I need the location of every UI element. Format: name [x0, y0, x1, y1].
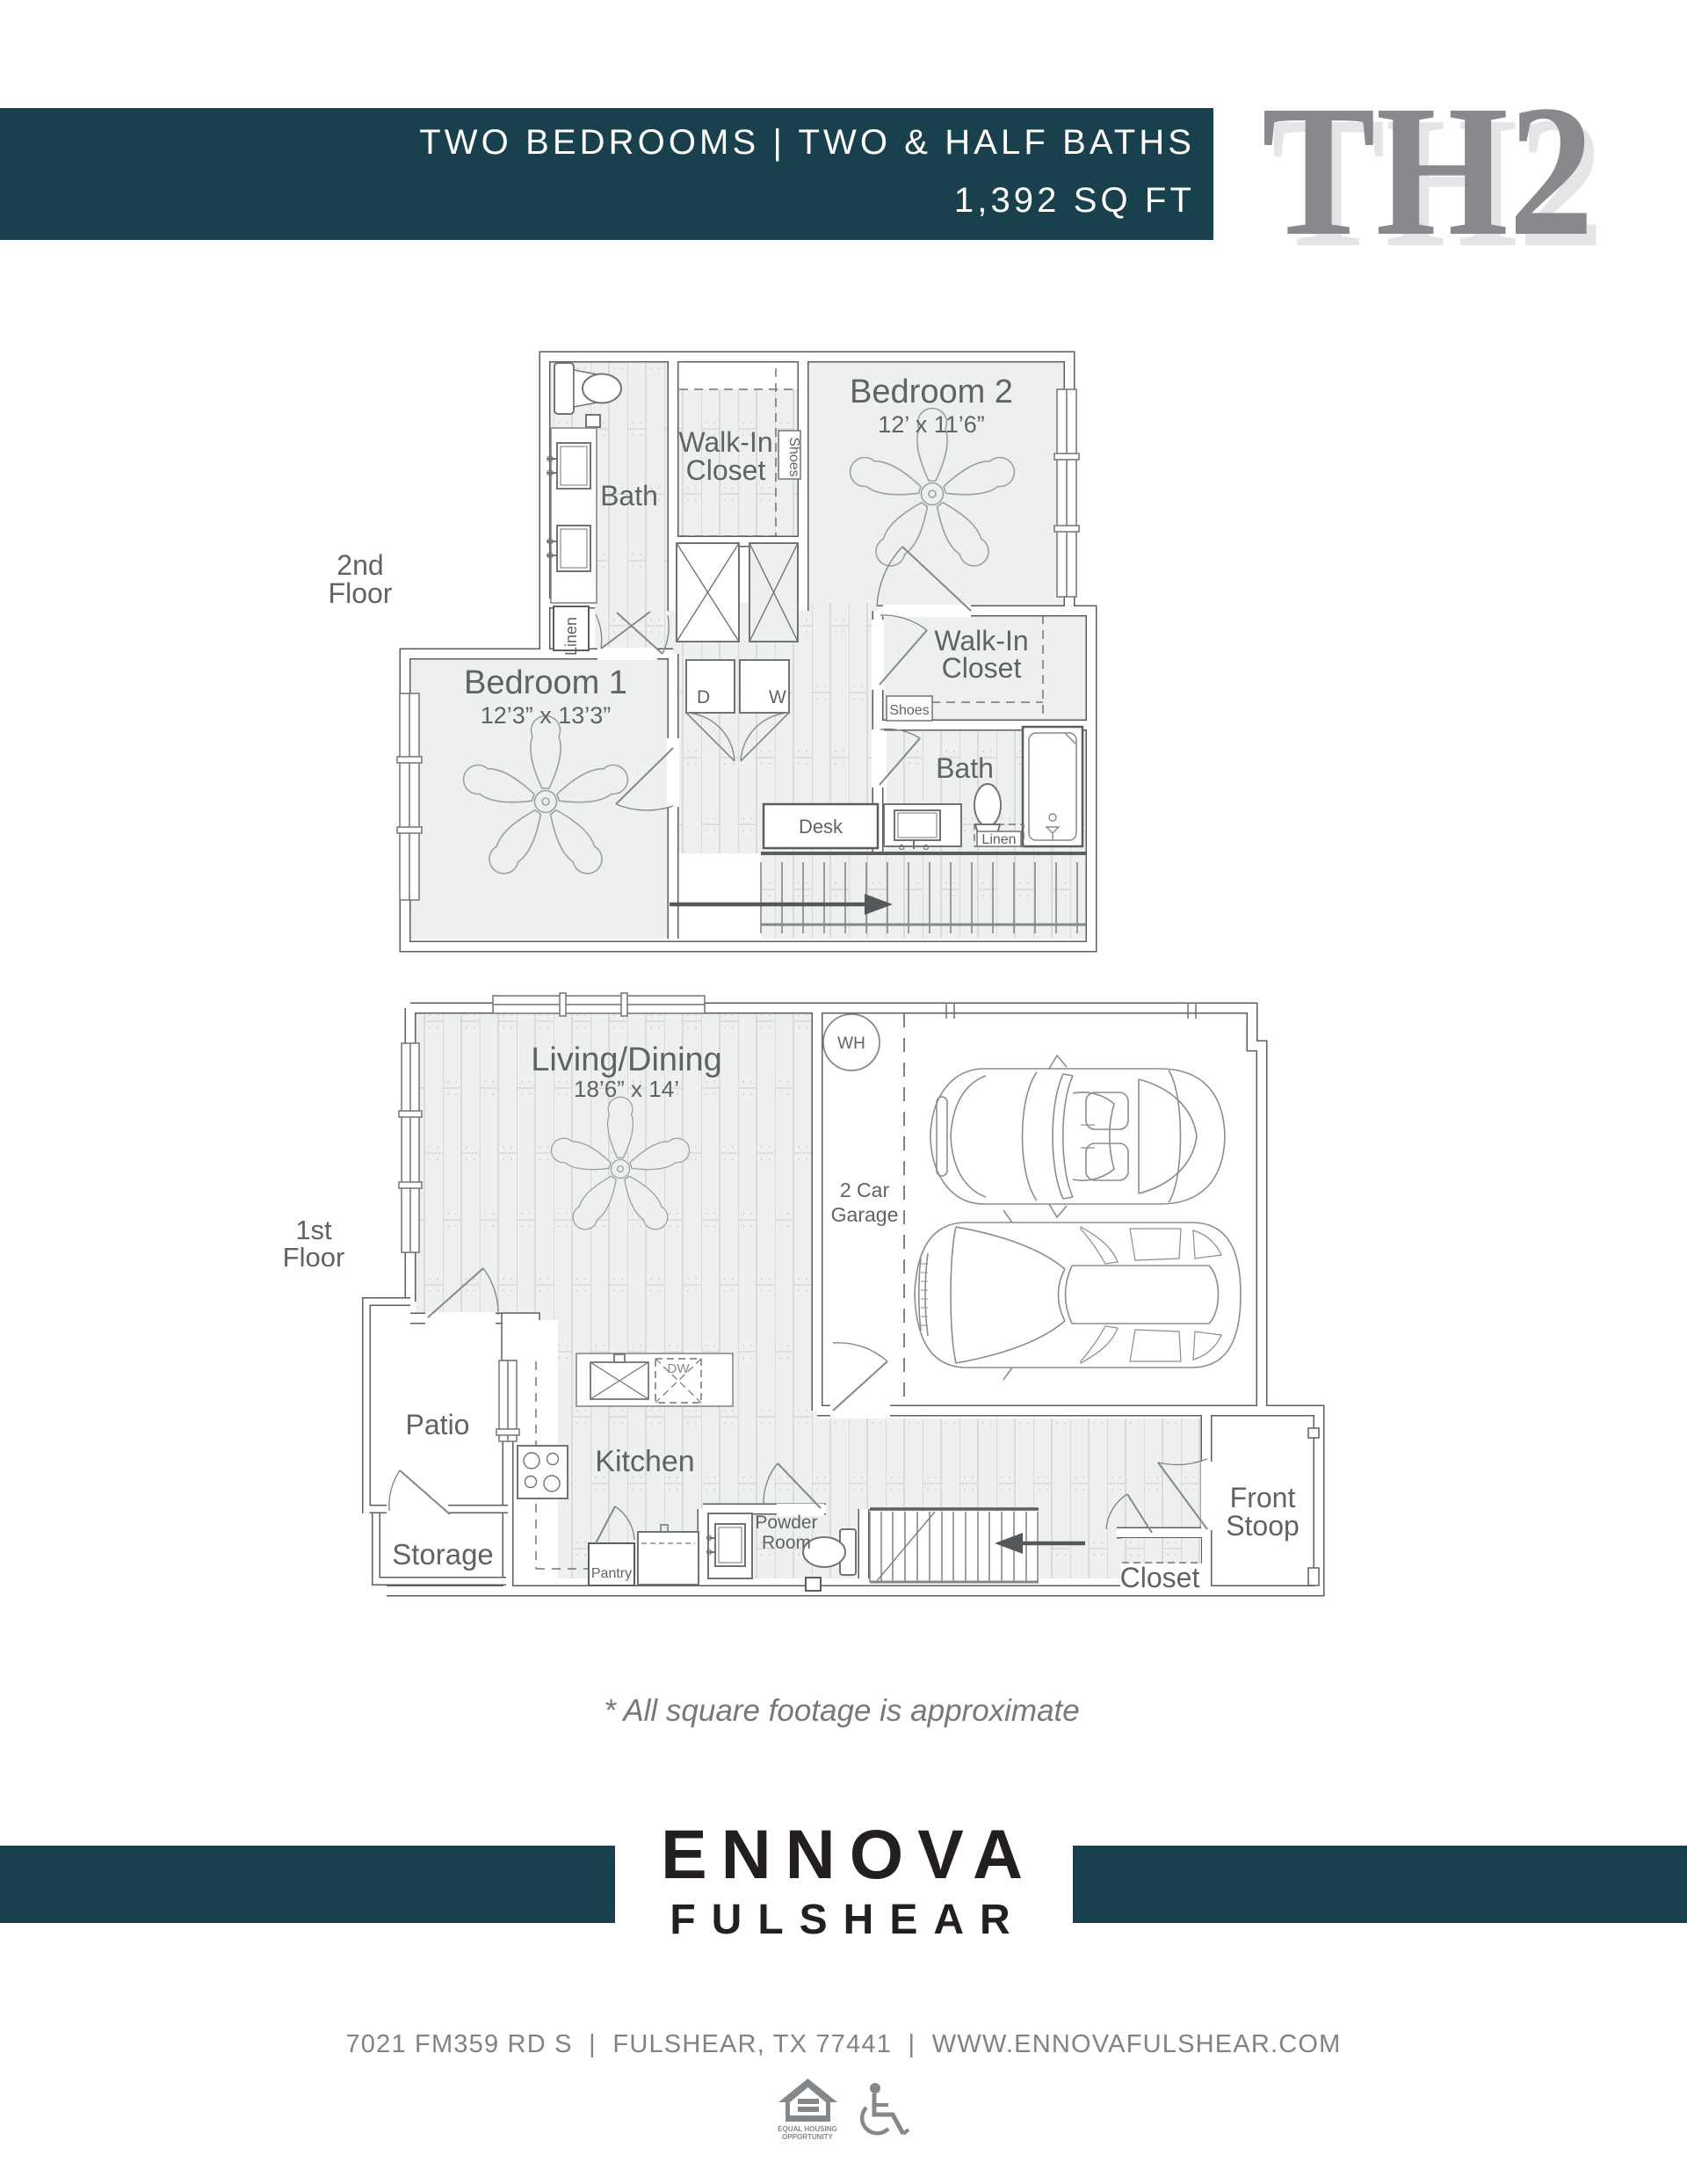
svg-text:EQUAL HOUSING: EQUAL HOUSING: [778, 2125, 836, 2133]
svg-text:Walk-In: Walk-In: [678, 426, 772, 458]
svg-text:Desk: Desk: [799, 816, 843, 838]
svg-text:* All square footage is approx: * All square footage is approximate: [604, 1694, 1080, 1728]
svg-text:Storage: Storage: [392, 1538, 494, 1571]
svg-text:TWO BEDROOMS | TWO & HALF BATH: TWO BEDROOMS | TWO & HALF BATHS: [419, 123, 1195, 162]
svg-text:Garage: Garage: [831, 1203, 899, 1226]
svg-text:Room: Room: [762, 1533, 811, 1553]
svg-text:Patio: Patio: [406, 1409, 470, 1440]
svg-text:W: W: [769, 687, 786, 707]
svg-text:Closet: Closet: [686, 454, 766, 486]
svg-text:12’ x 11’6”: 12’ x 11’6”: [878, 411, 985, 438]
svg-text:2nd: 2nd: [337, 549, 383, 581]
svg-text:Bedroom 1: Bedroom 1: [464, 664, 627, 701]
svg-text:Floor: Floor: [329, 577, 393, 609]
svg-text:2 Car: 2 Car: [840, 1179, 890, 1201]
svg-text:WH: WH: [837, 1034, 865, 1053]
svg-text:18’6” x 14’: 18’6” x 14’: [574, 1076, 679, 1102]
svg-text:Closet: Closet: [942, 652, 1022, 684]
svg-text:1st: 1st: [295, 1215, 332, 1245]
svg-text:Pantry: Pantry: [591, 1566, 632, 1581]
svg-text:Living/Dining: Living/Dining: [531, 1041, 722, 1078]
svg-text:Closet: Closet: [1120, 1562, 1200, 1593]
svg-text:Shoes: Shoes: [889, 703, 929, 718]
svg-text:Bath: Bath: [936, 752, 994, 784]
svg-text:Powder: Powder: [755, 1513, 817, 1533]
svg-text:DW: DW: [668, 1361, 691, 1376]
svg-text:TH2: TH2: [1262, 67, 1594, 275]
svg-text:ENNOVA: ENNOVA: [661, 1815, 1037, 1893]
svg-text:12’3” x 13’3”: 12’3” x 13’3”: [481, 702, 612, 729]
svg-text:Linen: Linen: [562, 617, 580, 656]
svg-text:Kitchen: Kitchen: [595, 1445, 694, 1478]
svg-text:7021 FM359 RD S | FULSHEAR,: 7021 FM359 RD S | FULSHEAR, TX 77441 | W…: [345, 2030, 1341, 2058]
svg-text:D: D: [697, 687, 710, 707]
svg-text:Bedroom 2: Bedroom 2: [850, 374, 1013, 410]
svg-text:Floor: Floor: [283, 1242, 345, 1273]
svg-text:Front: Front: [1230, 1482, 1296, 1513]
svg-text:Linen: Linen: [981, 832, 1016, 847]
svg-text:Bath: Bath: [600, 480, 658, 512]
svg-text:OPPORTUNITY: OPPORTUNITY: [782, 2133, 833, 2141]
svg-text:1,392 SQ FT: 1,392 SQ FT: [954, 181, 1195, 220]
svg-text:FULSHEAR: FULSHEAR: [670, 1897, 1025, 1943]
svg-text:Stoop: Stoop: [1226, 1510, 1300, 1542]
svg-text:Shoes: Shoes: [786, 437, 801, 476]
